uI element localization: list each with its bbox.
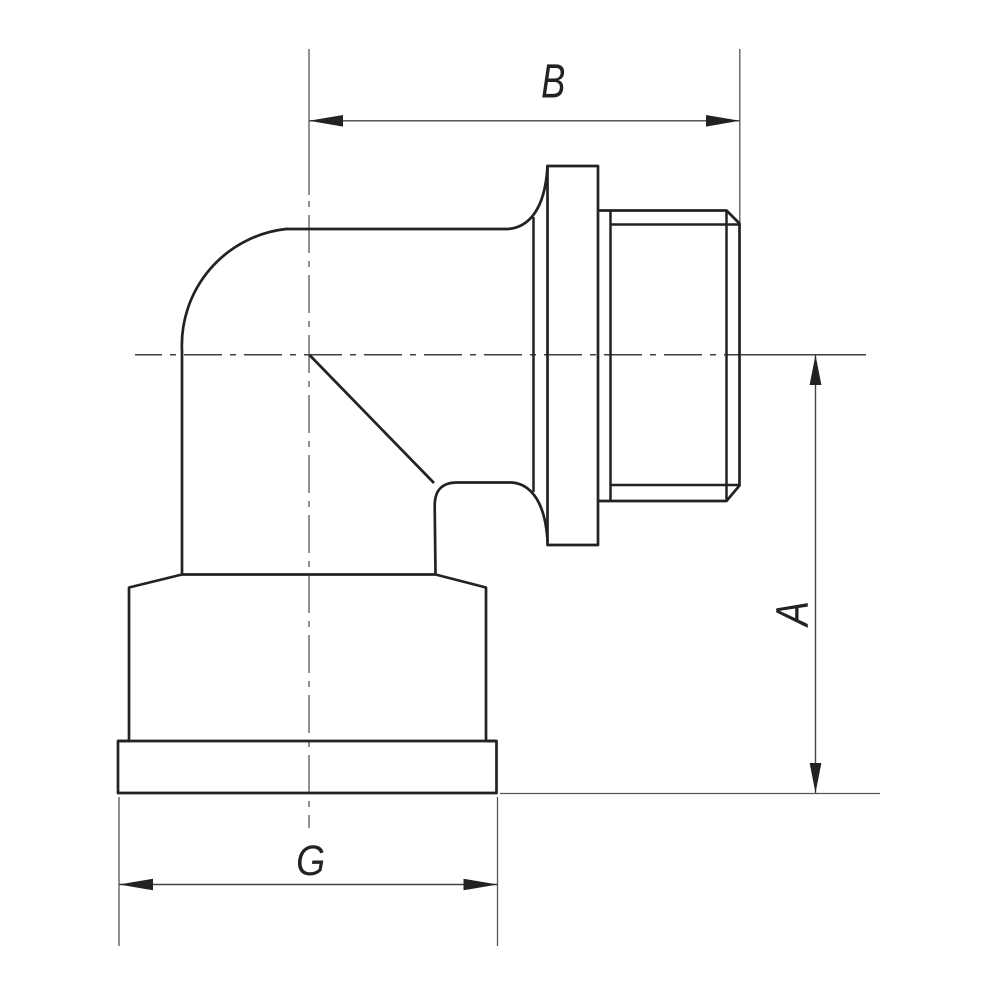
svg-text:A: A xyxy=(767,601,817,629)
svg-text:B: B xyxy=(541,54,565,108)
svg-text:G: G xyxy=(296,837,325,885)
